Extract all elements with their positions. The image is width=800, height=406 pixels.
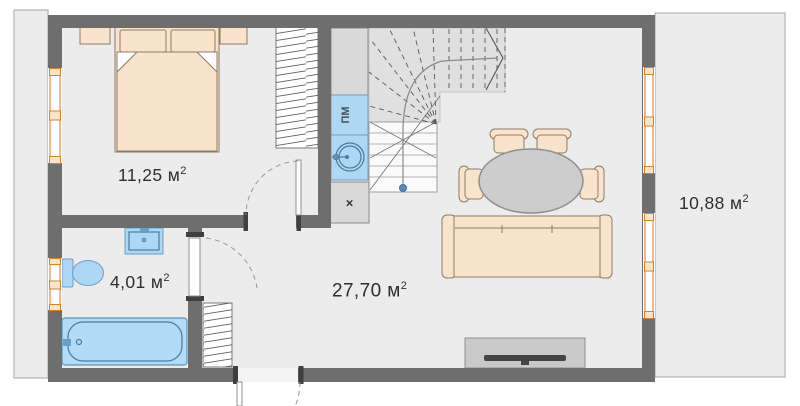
nightstand-left <box>80 27 110 44</box>
window-living-upper <box>643 67 655 174</box>
terrace-area-label: 10,88 м2 <box>679 193 749 214</box>
living-room-area-label: 27,70 м2 <box>332 280 407 302</box>
terrace-area-value: 10,88 м <box>679 193 743 213</box>
sofa <box>442 215 612 278</box>
entry-closet <box>203 303 232 367</box>
window-bathroom <box>48 258 62 311</box>
side-path <box>14 10 48 378</box>
kitchen-unit: ПМ × <box>330 28 369 223</box>
tv-stand <box>465 338 585 368</box>
window-living-lower <box>643 213 655 319</box>
toilet <box>62 259 104 287</box>
bathtub <box>62 318 187 365</box>
sofa-body <box>454 216 600 277</box>
kitchen-counter <box>331 28 368 95</box>
stair-walkline-start-dot <box>400 185 407 192</box>
toilet-bowl <box>73 261 104 286</box>
bathroom-area-label: 4,01 м2 <box>110 272 170 293</box>
hob-symbol: × <box>346 196 354 211</box>
tv-icon <box>484 355 566 361</box>
bathtub-faucet-icon <box>63 339 71 346</box>
toilet-tank <box>62 259 73 287</box>
dining-table <box>479 149 583 213</box>
floor-plan-page: ПМ × <box>0 0 800 406</box>
pillow-right <box>171 30 215 52</box>
door-entrance <box>237 382 300 406</box>
pillow-left <box>120 30 166 52</box>
nightstand-right <box>220 27 247 44</box>
bedroom-area-label: 11,25 м2 <box>118 165 187 186</box>
blanket <box>117 52 217 151</box>
bathroom-area-value: 4,01 м <box>110 272 163 292</box>
living-room-area-value: 27,70 м <box>332 280 401 301</box>
bedroom-wardrobe <box>276 27 318 148</box>
washbasin <box>125 228 163 254</box>
bedroom-area-value: 11,25 м <box>118 165 180 185</box>
dishwasher-label: ПМ <box>340 106 352 123</box>
window-bedroom <box>48 68 62 164</box>
